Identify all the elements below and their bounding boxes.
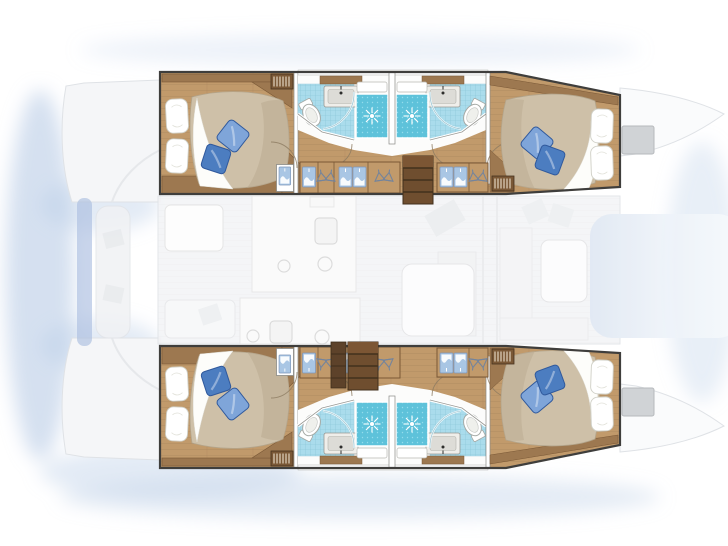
bottom-hull-stairs [348,342,378,390]
lounge-sofa-ghost [500,228,532,332]
saloon-table-ghost [402,264,474,336]
catamaran-floorplan-image [0,0,728,546]
deck-hatch-icon [622,126,654,154]
stern-ghost [62,338,160,460]
floorplan-svg [0,0,728,546]
davit-arch-ghost [77,198,92,346]
bottom-hull-stair-shelf [331,342,346,388]
cockpit-table-ghost [165,205,223,251]
galley-appliance-ghost [310,197,334,207]
bottom-hull [160,346,620,470]
galley-sink-ghost [270,321,292,343]
galley-ghost [240,196,360,344]
cockpit-bench-ghost [96,206,130,338]
top-hull-stairs [403,156,433,204]
lounge-table-ghost [541,240,587,302]
galley-sink-ghost [315,218,337,244]
main-deck-ghost [77,196,728,346]
top-hull [160,70,620,194]
deck-hatch-icon [622,388,654,416]
foredeck-panel [590,214,728,338]
stern-ghost [62,80,160,202]
